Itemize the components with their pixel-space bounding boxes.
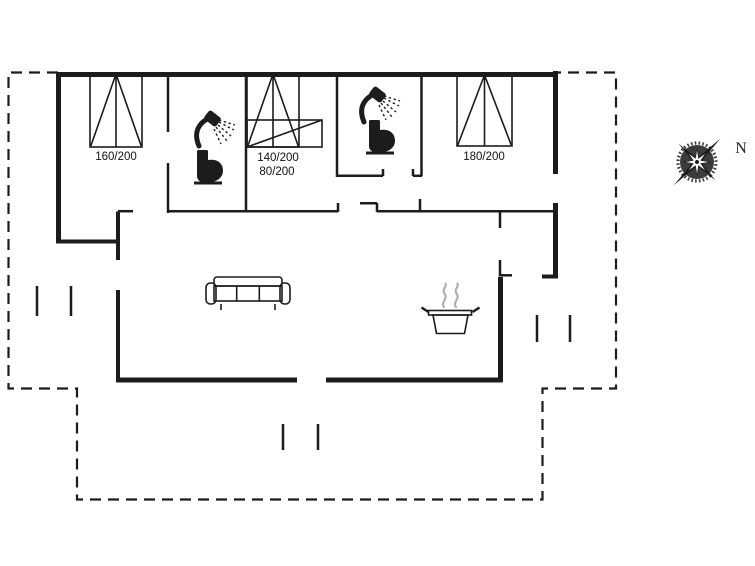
cooking-pot-icon bbox=[422, 284, 480, 334]
bathroom-1-fixtures bbox=[194, 110, 235, 185]
compass-rose-icon bbox=[655, 120, 738, 203]
terrace-outline bbox=[9, 73, 617, 500]
interior-walls bbox=[118, 73, 556, 277]
bed-size-label-3: 80/200 bbox=[259, 166, 294, 178]
bunk-bed-80x200 bbox=[247, 120, 322, 147]
double-bed-160x200 bbox=[90, 74, 142, 147]
sofa-icon bbox=[206, 277, 290, 310]
bathroom-2-fixtures bbox=[362, 86, 400, 155]
bed-size-label-2: 140/200 bbox=[257, 152, 299, 164]
north-label: N bbox=[735, 140, 747, 157]
shower-icon bbox=[362, 86, 400, 122]
bed-size-label-1: 160/200 bbox=[95, 151, 137, 163]
beds bbox=[90, 74, 512, 147]
double-bed-180x200 bbox=[457, 75, 512, 146]
bed-size-label-4: 180/200 bbox=[463, 151, 505, 163]
toilet-icon bbox=[366, 120, 395, 155]
toilet-icon bbox=[194, 150, 223, 185]
floor-plan-canvas: 160/200 140/200 80/200 180/200 bbox=[0, 0, 755, 566]
double-bed-140x200 bbox=[247, 74, 299, 147]
shower-icon bbox=[197, 110, 235, 146]
